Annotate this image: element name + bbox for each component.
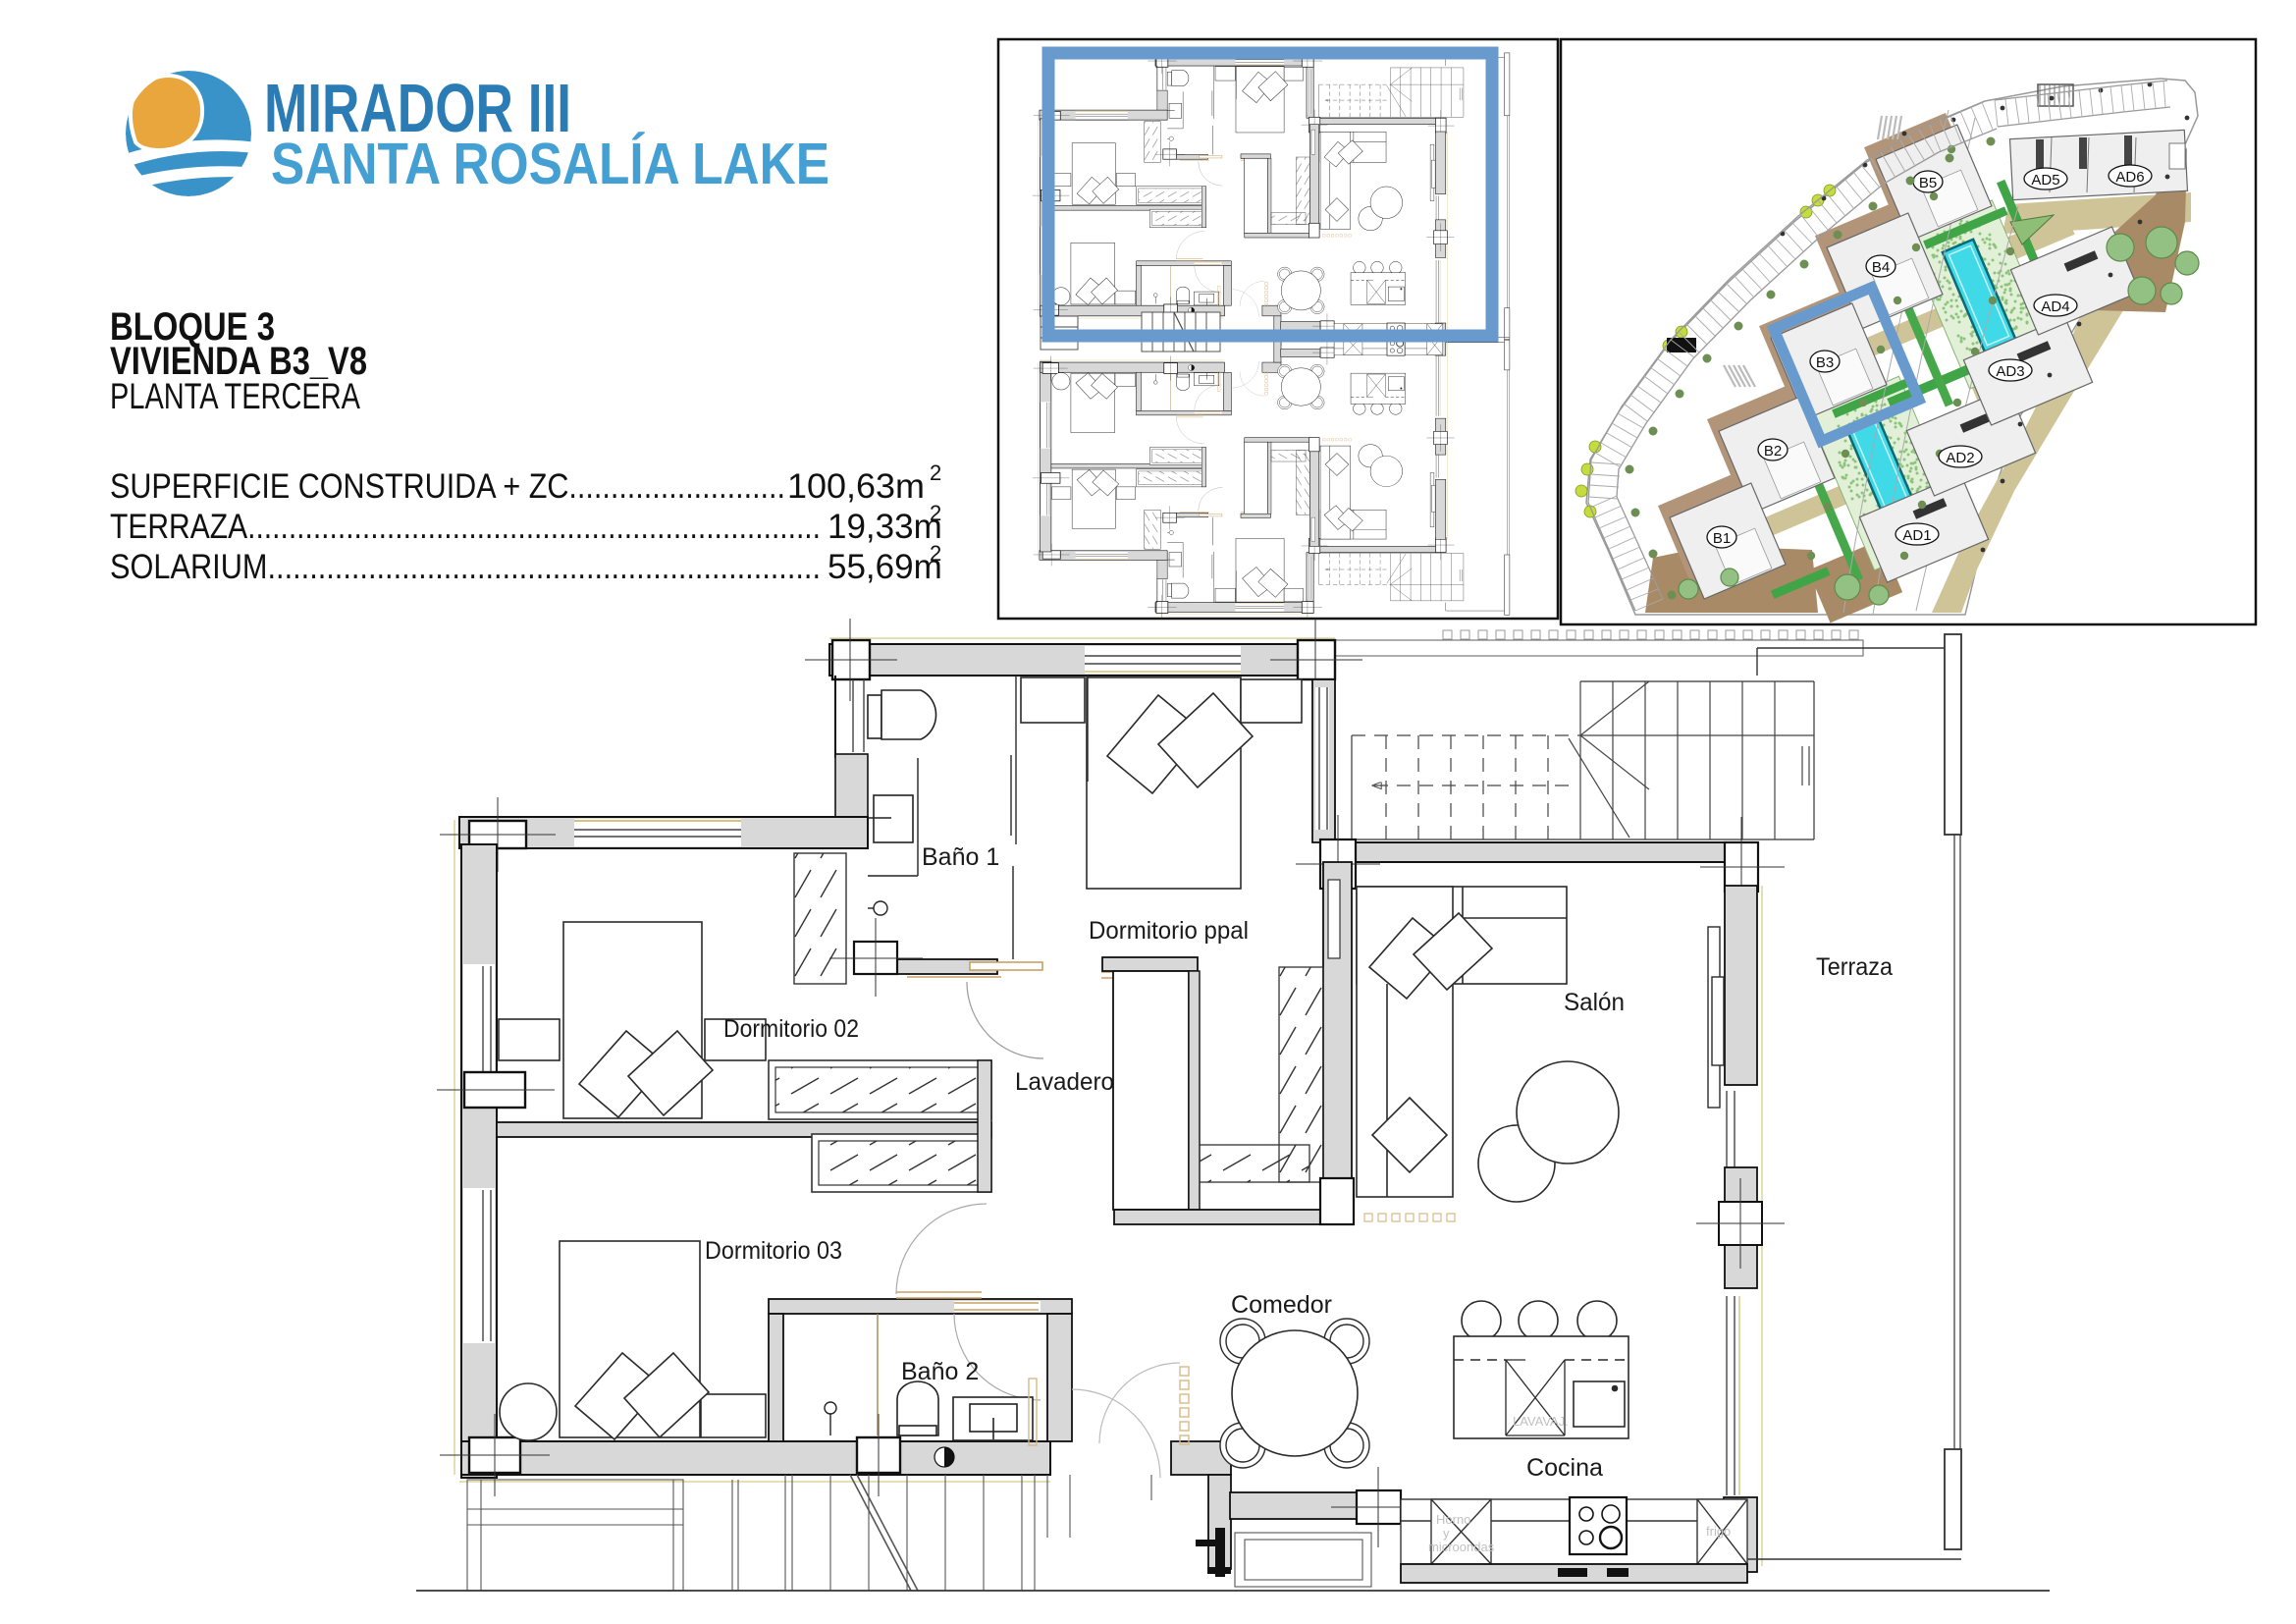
svg-text:SANTA ROSALÍA LAKE: SANTA ROSALÍA LAKE	[271, 132, 829, 196]
svg-text:2: 2	[930, 501, 941, 525]
svg-text:2: 2	[930, 541, 941, 566]
svg-text:AD3: AD3	[1996, 363, 2024, 380]
svg-text:55,69m: 55,69m	[828, 548, 942, 586]
svg-text:Comedor: Comedor	[1231, 1291, 1332, 1319]
svg-text:LAVAVAJ.: LAVAVAJ.	[1513, 1414, 1569, 1429]
svg-text:y: y	[1443, 1526, 1450, 1541]
svg-text:2: 2	[930, 460, 941, 485]
svg-text:SOLARIUM......................: SOLARIUM................................…	[110, 548, 821, 586]
svg-text:B4: B4	[1872, 259, 1890, 276]
svg-text:AD4: AD4	[2041, 298, 2069, 315]
svg-text:AD6: AD6	[2115, 169, 2144, 186]
svg-text:Terraza: Terraza	[1816, 953, 1893, 981]
svg-text:Dormitorio 02: Dormitorio 02	[723, 1015, 859, 1043]
svg-text:AD2: AD2	[1946, 450, 1974, 466]
svg-text:B3: B3	[1816, 354, 1834, 371]
svg-text:Cocina: Cocina	[1526, 1454, 1603, 1482]
svg-text:microondas: microondas	[1428, 1540, 1495, 1554]
svg-text:PLANTA TERCERA: PLANTA TERCERA	[110, 376, 360, 416]
svg-text:Dormitorio 03: Dormitorio 03	[705, 1237, 842, 1265]
svg-text:TERRAZA.......................: TERRAZA.................................…	[110, 508, 821, 546]
svg-text:AD5: AD5	[2031, 172, 2059, 189]
svg-text:Lavadero: Lavadero	[1015, 1068, 1114, 1096]
svg-text:frigo: frigo	[1706, 1524, 1731, 1539]
svg-text:Horno: Horno	[1436, 1512, 1470, 1527]
svg-text:Dormitorio ppal: Dormitorio ppal	[1089, 917, 1249, 945]
svg-text:SUPERFICIE CONSTRUIDA + ZC....: SUPERFICIE CONSTRUIDA + ZC..............…	[110, 467, 785, 506]
svg-text:B1: B1	[1713, 530, 1731, 547]
svg-text:B5: B5	[1919, 175, 1937, 191]
svg-text:Baño 2: Baño 2	[901, 1358, 979, 1385]
svg-text:AD1: AD1	[1902, 527, 1931, 544]
svg-text:Salón: Salón	[1564, 989, 1625, 1016]
svg-text:100,63m: 100,63m	[787, 467, 925, 506]
svg-text:Baño 1: Baño 1	[922, 843, 999, 871]
svg-text:19,33m: 19,33m	[828, 508, 942, 546]
svg-text:B2: B2	[1764, 443, 1782, 460]
